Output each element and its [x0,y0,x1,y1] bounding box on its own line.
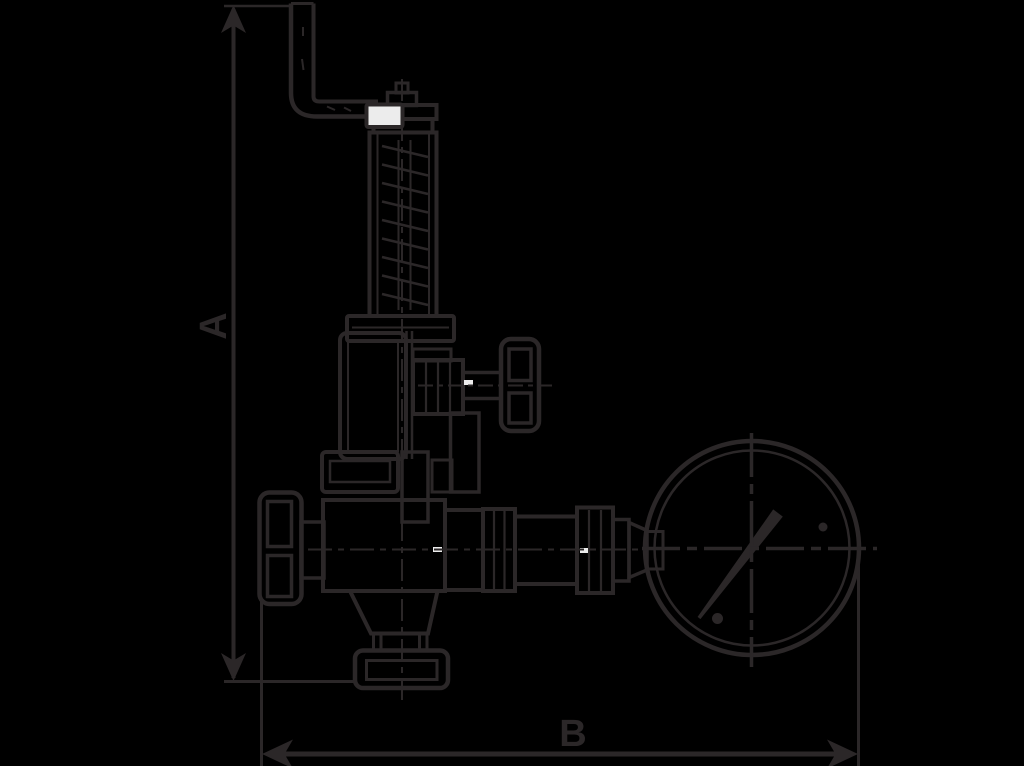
lower-housing [340,333,406,459]
centerlines [308,79,877,700]
flange-plate-inner [330,461,390,482]
main-handwheel-spoke [268,556,292,597]
stem-highlight [464,380,473,385]
side-handwheel-spoke [509,349,531,381]
side-handwheel-spoke [509,393,531,423]
lower-housing-inner [348,341,398,451]
lever-inner-edge [314,4,379,102]
dimension-b: B [262,548,859,766]
test-lever [291,4,403,128]
spring-coils [382,146,428,305]
side-valve-assembly [413,339,552,492]
lever-socket [367,105,403,128]
main-handwheel [260,493,302,605]
lever-detail-tick [327,107,335,111]
main-body [301,500,483,688]
bonnet-neck [402,452,428,522]
side-valve-downpipe [451,413,480,492]
bonnet-flange [322,452,452,522]
lever-detail-tick [302,59,304,70]
body-lower-taper [350,591,438,634]
gauge-needle [698,509,783,619]
lever-detail-tick [344,108,351,112]
dimension-a-label: A [193,312,235,339]
dimension-b-label: B [559,713,586,755]
gauge-dot [712,613,723,624]
technical-drawing-canvas: A B [0,0,1024,766]
main-handwheel-spoke [268,502,292,547]
dimension-a: A [193,5,357,682]
gauge-dot [819,523,828,532]
valve-technical-drawing: A B [0,0,1024,766]
